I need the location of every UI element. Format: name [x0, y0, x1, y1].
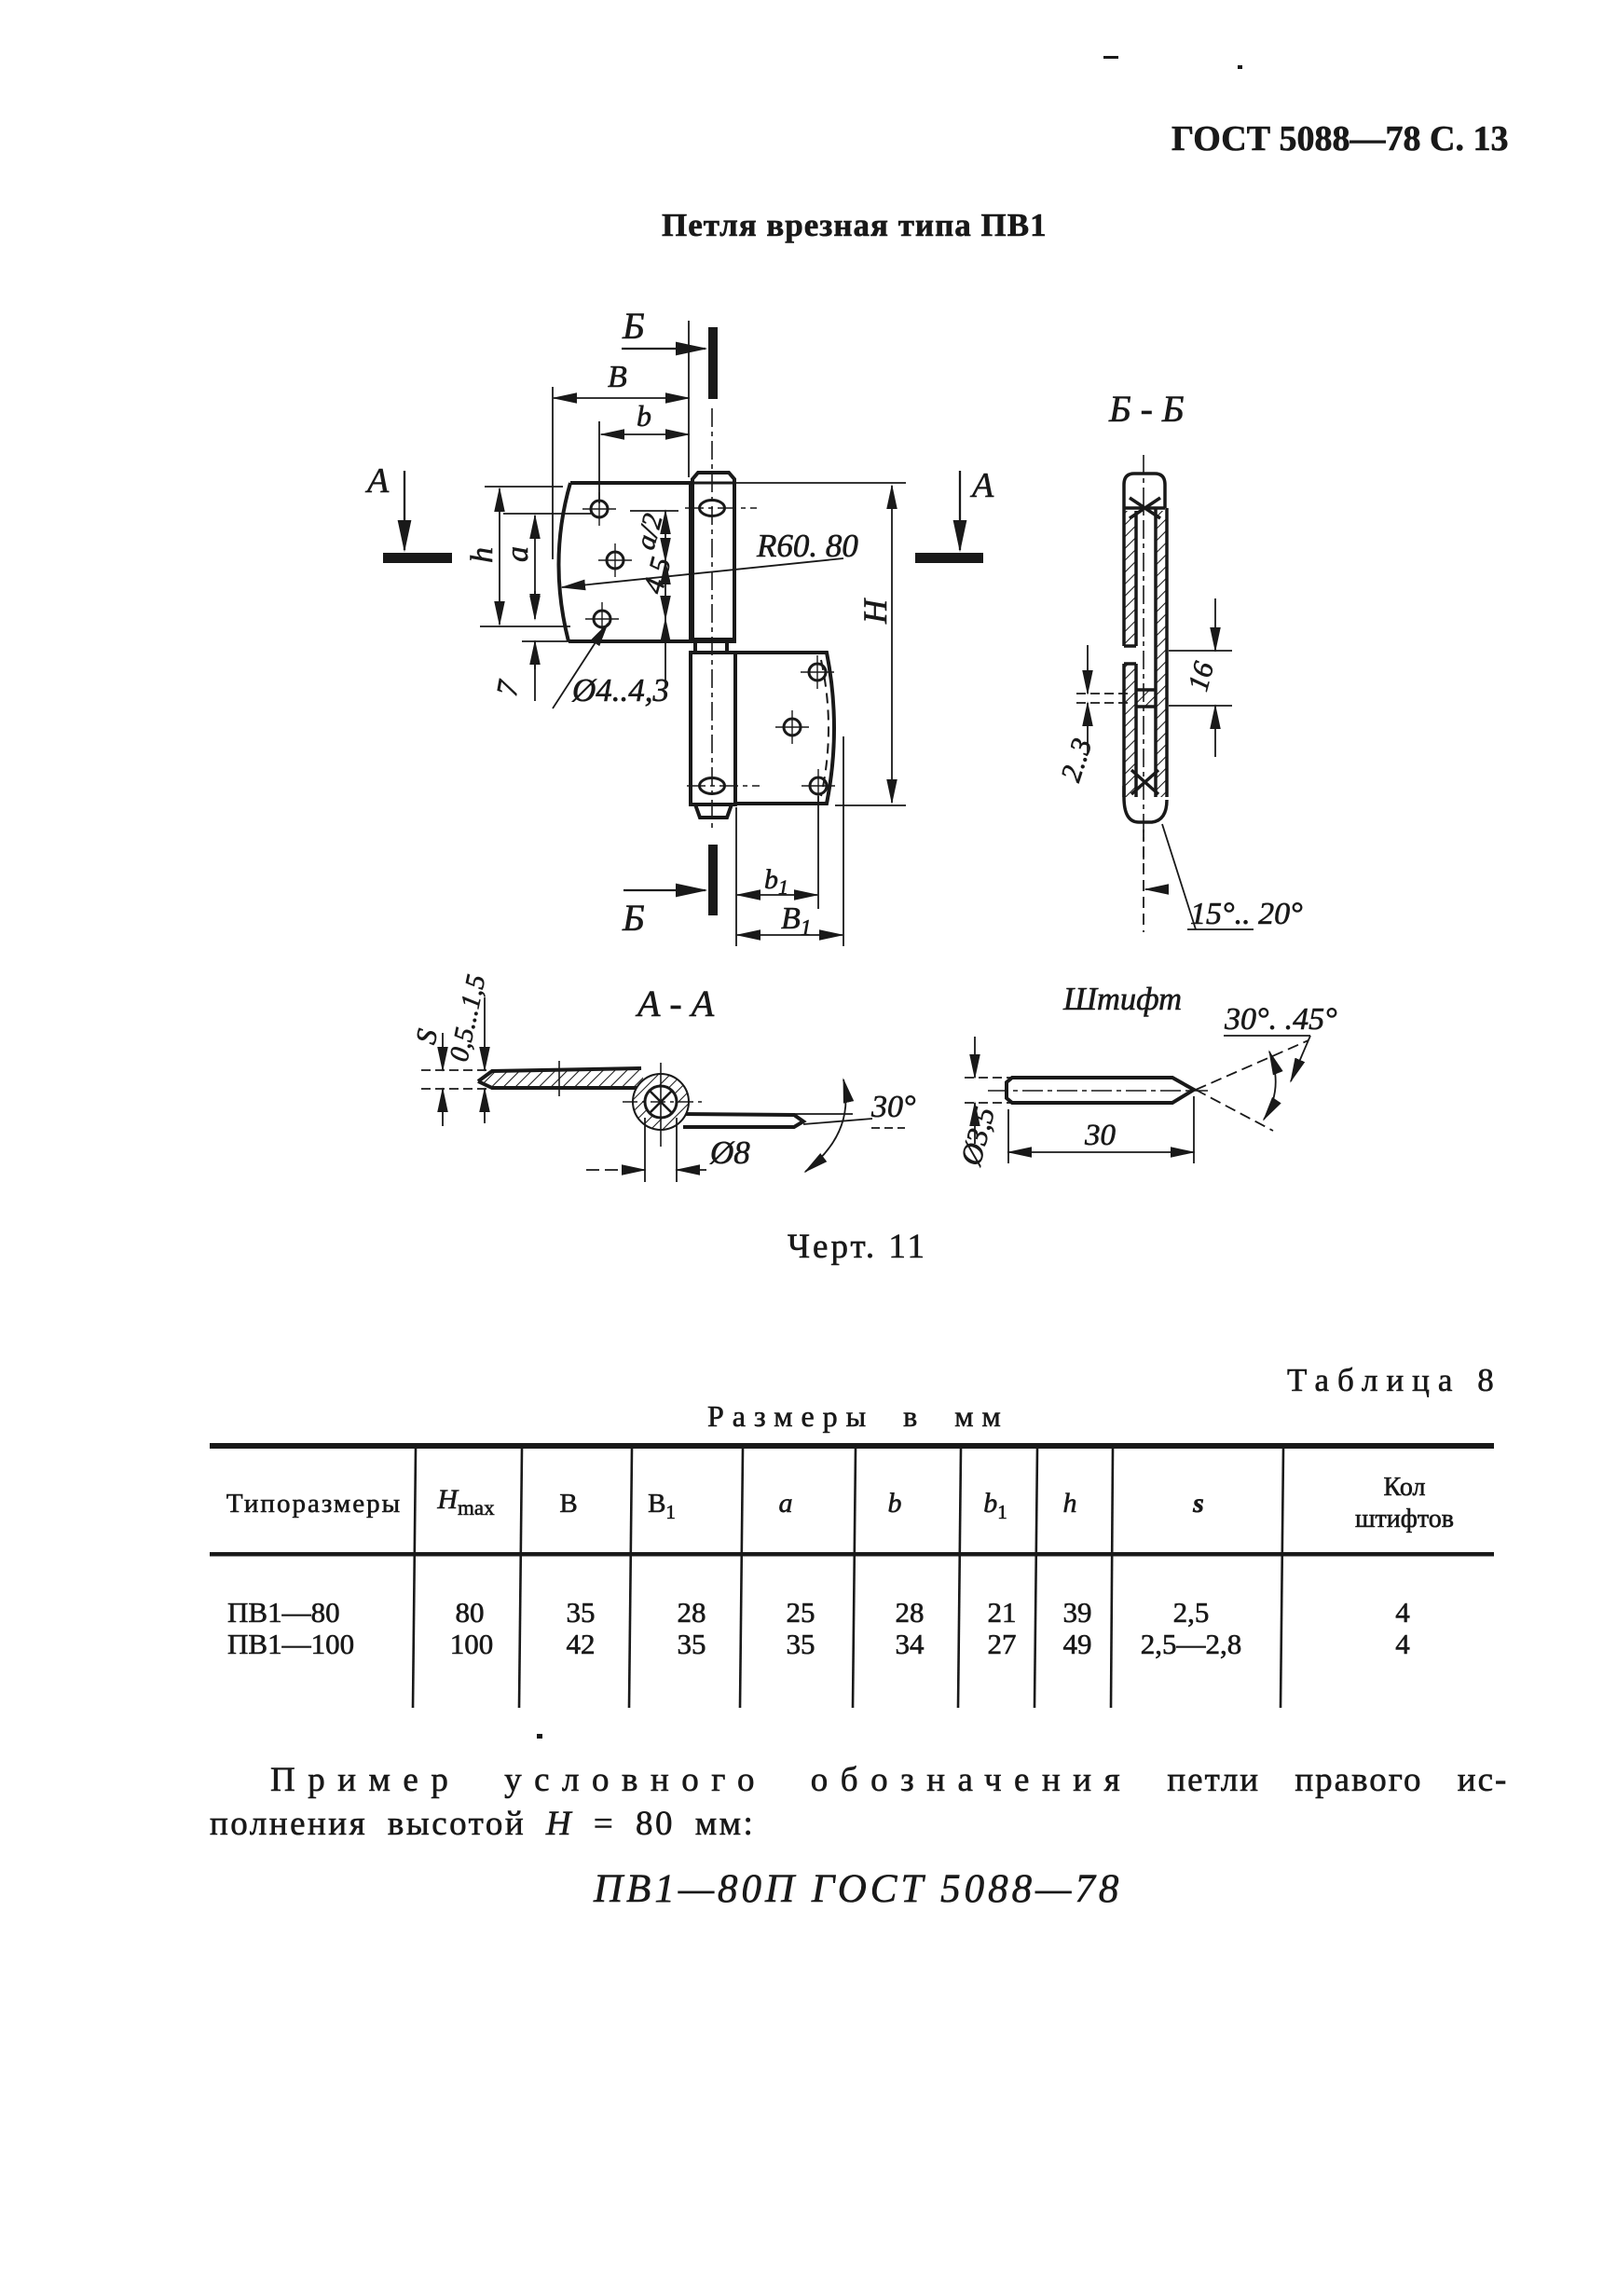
svg-text:Н: Н [856, 598, 894, 625]
svg-text:35: 35 [678, 1628, 706, 1660]
svg-text:R60. 80: R60. 80 [756, 528, 858, 564]
svg-text:полнения высотой Н = 80 мм:: полнения высотой Н = 80 мм: [210, 1805, 755, 1843]
svg-text:25: 25 [787, 1596, 815, 1629]
svg-text:34: 34 [896, 1628, 925, 1660]
svg-text:30°: 30° [870, 1090, 916, 1124]
svg-text:Типоразмеры: Типоразмеры [226, 1489, 402, 1519]
svg-text:21: 21 [988, 1596, 1017, 1629]
svg-text:ПВ1—80: ПВ1—80 [227, 1596, 340, 1629]
svg-text:100: 100 [450, 1628, 494, 1660]
svg-text:b: b [888, 1488, 902, 1519]
svg-text:Таблица 8: Таблица 8 [1287, 1362, 1502, 1398]
svg-text:a: a [500, 546, 535, 562]
svg-text:27: 27 [988, 1628, 1017, 1660]
svg-text:28: 28 [896, 1596, 925, 1629]
svg-text:h: h [1063, 1488, 1077, 1519]
svg-text:49: 49 [1063, 1628, 1092, 1660]
svg-text:39: 39 [1063, 1596, 1092, 1629]
svg-text:А: А [969, 466, 994, 505]
svg-text:ГОСТ 5088—78 С. 13: ГОСТ 5088—78 С. 13 [1171, 119, 1508, 158]
svg-text:80: 80 [456, 1596, 485, 1629]
svg-text:Б: Б [622, 897, 645, 939]
svg-text:Кол: Кол [1384, 1473, 1426, 1502]
svg-text:Штифт: Штифт [1062, 982, 1182, 1017]
svg-text:42: 42 [567, 1628, 596, 1660]
svg-text:2,5: 2,5 [1173, 1596, 1210, 1629]
svg-text:35: 35 [567, 1596, 596, 1629]
svg-text:30°. .45°: 30°. .45° [1224, 1002, 1337, 1037]
svg-text:ПВ1—100: ПВ1—100 [227, 1628, 354, 1660]
svg-text:В: В [559, 1489, 577, 1519]
svg-text:Б: Б [622, 305, 645, 347]
svg-text:Ø8: Ø8 [709, 1134, 750, 1171]
svg-text:Пример условного обозначения п: Пример условного обозначения петли право… [270, 1761, 1508, 1799]
svg-text:Ø4..4,3: Ø4..4,3 [571, 672, 669, 708]
svg-text:Петля врезная типа ПВ1: Петля врезная типа ПВ1 [662, 207, 1048, 243]
svg-text:штифтов: штифтов [1355, 1505, 1454, 1533]
svg-text:28: 28 [678, 1596, 706, 1629]
svg-text:А: А [364, 461, 390, 501]
svg-text:b: b [637, 399, 651, 433]
svg-text:4: 4 [1395, 1596, 1410, 1629]
svg-text:15°.. 20°: 15°.. 20° [1190, 897, 1303, 931]
svg-text:4: 4 [1395, 1628, 1410, 1660]
svg-text:2,5—2,8: 2,5—2,8 [1141, 1628, 1242, 1660]
svg-text:Б - Б: Б - Б [1108, 388, 1185, 430]
svg-text:30: 30 [1084, 1119, 1117, 1152]
svg-text:В: В [608, 360, 627, 394]
svg-text:a: a [779, 1488, 793, 1519]
svg-text:Размеры в мм: Размеры в мм [707, 1399, 1009, 1433]
svg-text:s: s [1192, 1488, 1204, 1519]
svg-text:35: 35 [787, 1628, 815, 1660]
svg-text:А - А: А - А [635, 983, 715, 1024]
svg-text:ПВ1—80П ГОСТ 5088—78: ПВ1—80П ГОСТ 5088—78 [593, 1867, 1122, 1911]
svg-text:Черт. 11: Черт. 11 [788, 1228, 927, 1266]
svg-text:h: h [465, 547, 500, 563]
